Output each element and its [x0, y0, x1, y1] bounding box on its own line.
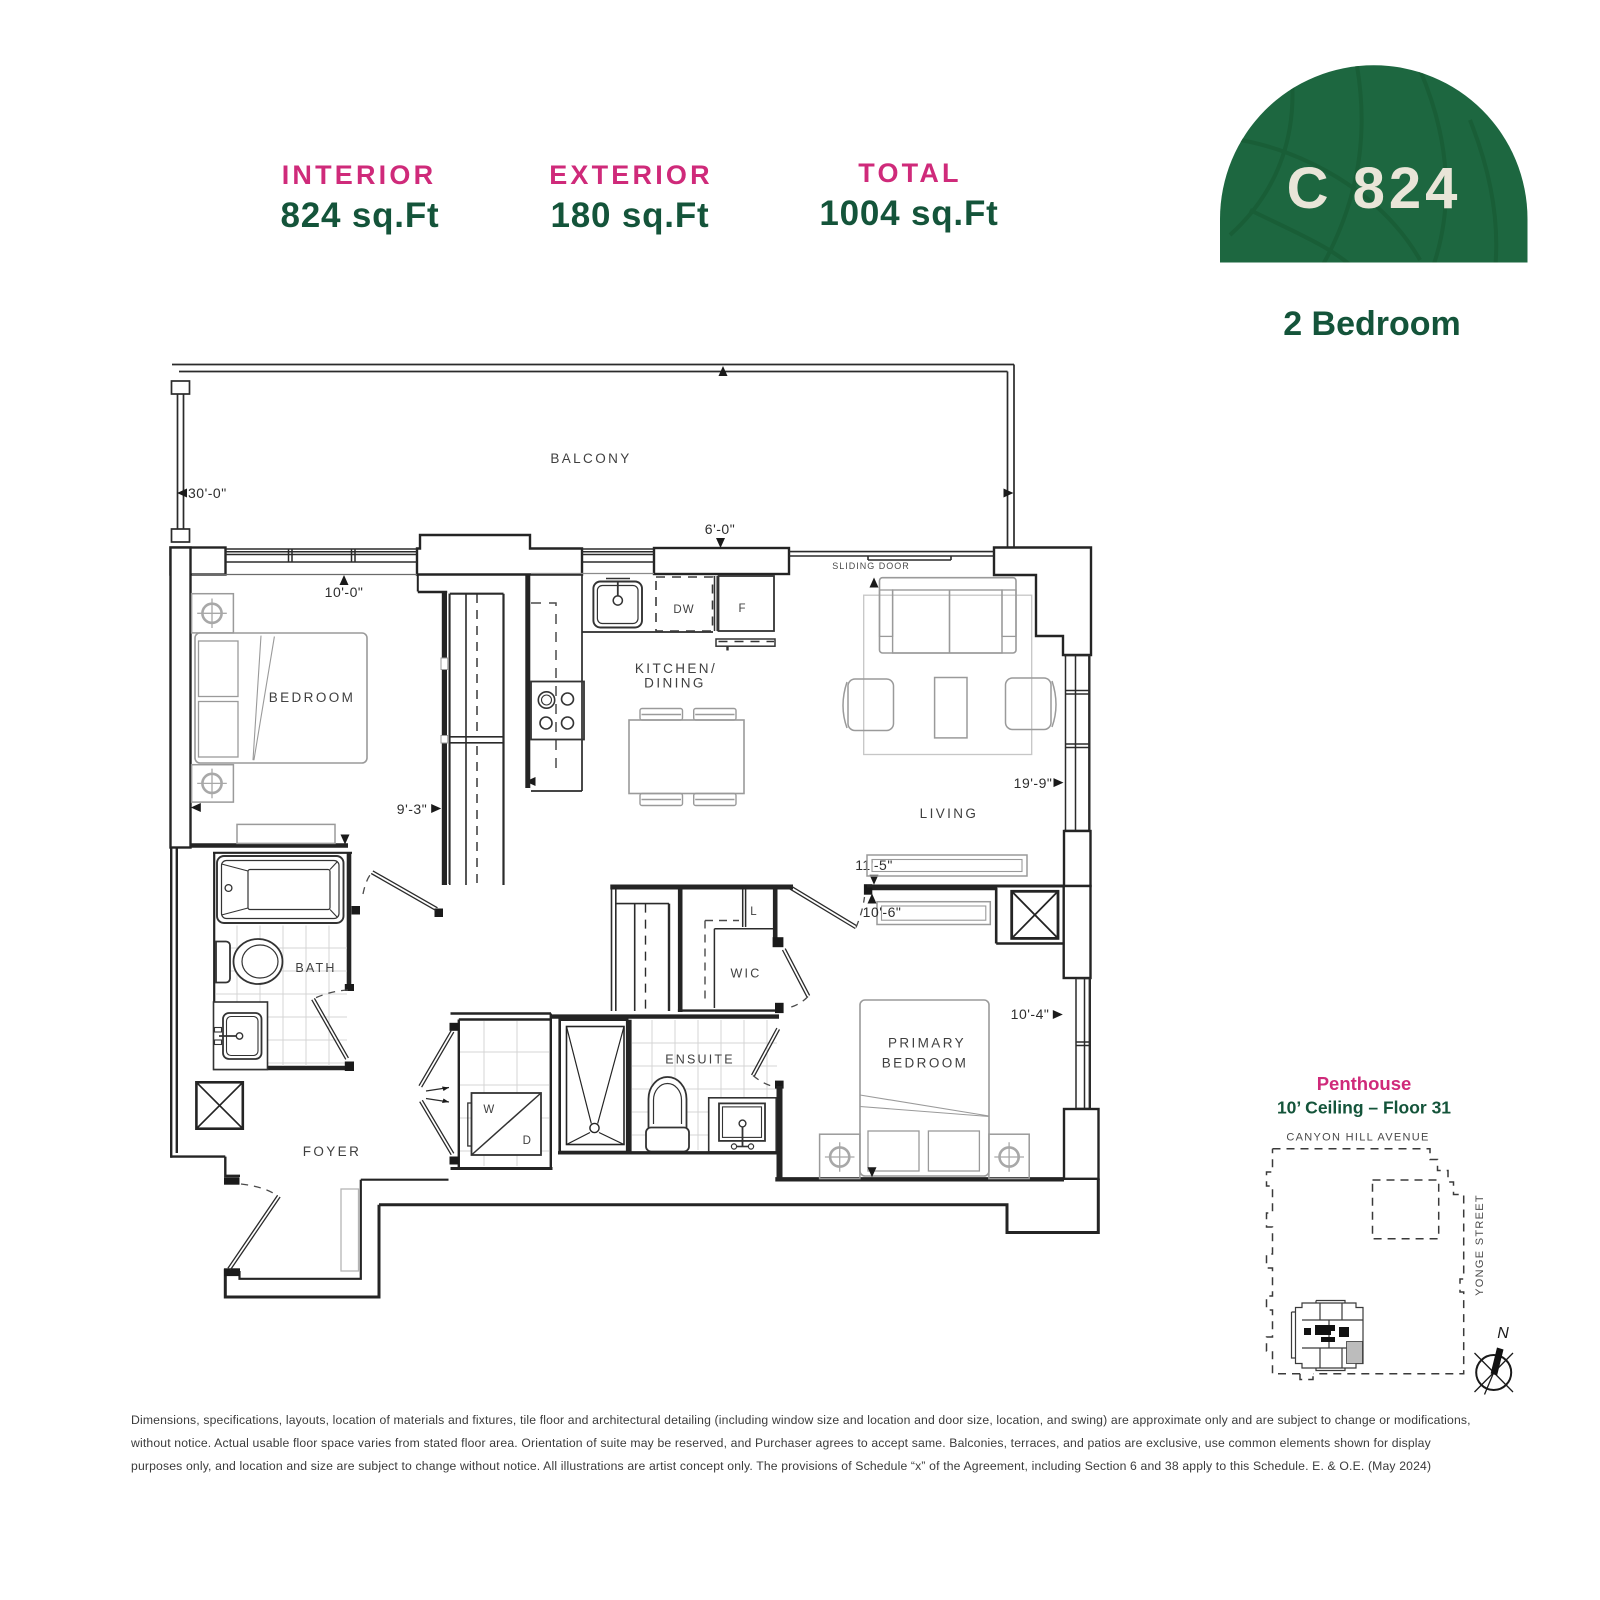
svg-text:Dimensions, specifications, la: Dimensions, specifications, layouts, loc…: [131, 1413, 1471, 1427]
svg-text:KITCHEN/: KITCHEN/: [635, 661, 717, 676]
svg-text:D: D: [523, 1135, 532, 1147]
svg-text:10’ Ceiling – Floor 31: 10’ Ceiling – Floor 31: [1277, 1098, 1451, 1118]
svg-text:6'-0": 6'-0": [705, 521, 735, 537]
svg-text:10'-0": 10'-0": [325, 584, 364, 600]
svg-text:purposes only, and location an: purposes only, and location and size are…: [131, 1459, 1431, 1473]
svg-text:LIVING: LIVING: [920, 806, 979, 821]
svg-text:30'-0": 30'-0": [188, 485, 227, 501]
svg-text:C 824: C 824: [1287, 156, 1462, 221]
svg-text:BEDROOM: BEDROOM: [269, 690, 356, 705]
svg-text:180 sq.Ft: 180 sq.Ft: [551, 196, 710, 235]
svg-text:TOTAL: TOTAL: [858, 158, 962, 188]
svg-text:BATH: BATH: [295, 961, 336, 975]
svg-text:BALCONY: BALCONY: [550, 451, 631, 466]
svg-text:9'-3": 9'-3": [397, 801, 427, 817]
svg-text:10'-6": 10'-6": [863, 904, 902, 920]
svg-text:L: L: [750, 906, 757, 918]
svg-text:EXTERIOR: EXTERIOR: [549, 160, 713, 190]
svg-text:YONGE STREET: YONGE STREET: [1474, 1194, 1486, 1296]
svg-text:without notice. Actual usable: without notice. Actual usable floor spac…: [130, 1436, 1432, 1450]
svg-text:DINING: DINING: [644, 676, 706, 691]
svg-text:PRIMARY: PRIMARY: [888, 1036, 966, 1051]
svg-text:2 Bedroom: 2 Bedroom: [1283, 305, 1461, 343]
svg-text:INTERIOR: INTERIOR: [282, 160, 437, 190]
svg-text:1004 sq.Ft: 1004 sq.Ft: [819, 194, 998, 233]
svg-text:W: W: [483, 1104, 494, 1116]
svg-text:FOYER: FOYER: [303, 1144, 362, 1159]
svg-text:19'-9": 19'-9": [1014, 775, 1053, 791]
svg-text:DW: DW: [673, 604, 694, 616]
svg-text:824 sq.Ft: 824 sq.Ft: [281, 196, 440, 235]
svg-text:SLIDING DOOR: SLIDING DOOR: [832, 561, 910, 571]
svg-text:WIC: WIC: [731, 967, 762, 981]
svg-text:CANYON HILL AVENUE: CANYON HILL AVENUE: [1286, 1132, 1429, 1144]
svg-text:F: F: [738, 603, 746, 615]
svg-text:Penthouse: Penthouse: [1317, 1073, 1412, 1094]
svg-text:BEDROOM: BEDROOM: [882, 1056, 969, 1071]
svg-text:N: N: [1497, 1325, 1509, 1342]
svg-text:10'-4": 10'-4": [1011, 1006, 1050, 1022]
svg-text:ENSUITE: ENSUITE: [665, 1053, 735, 1067]
